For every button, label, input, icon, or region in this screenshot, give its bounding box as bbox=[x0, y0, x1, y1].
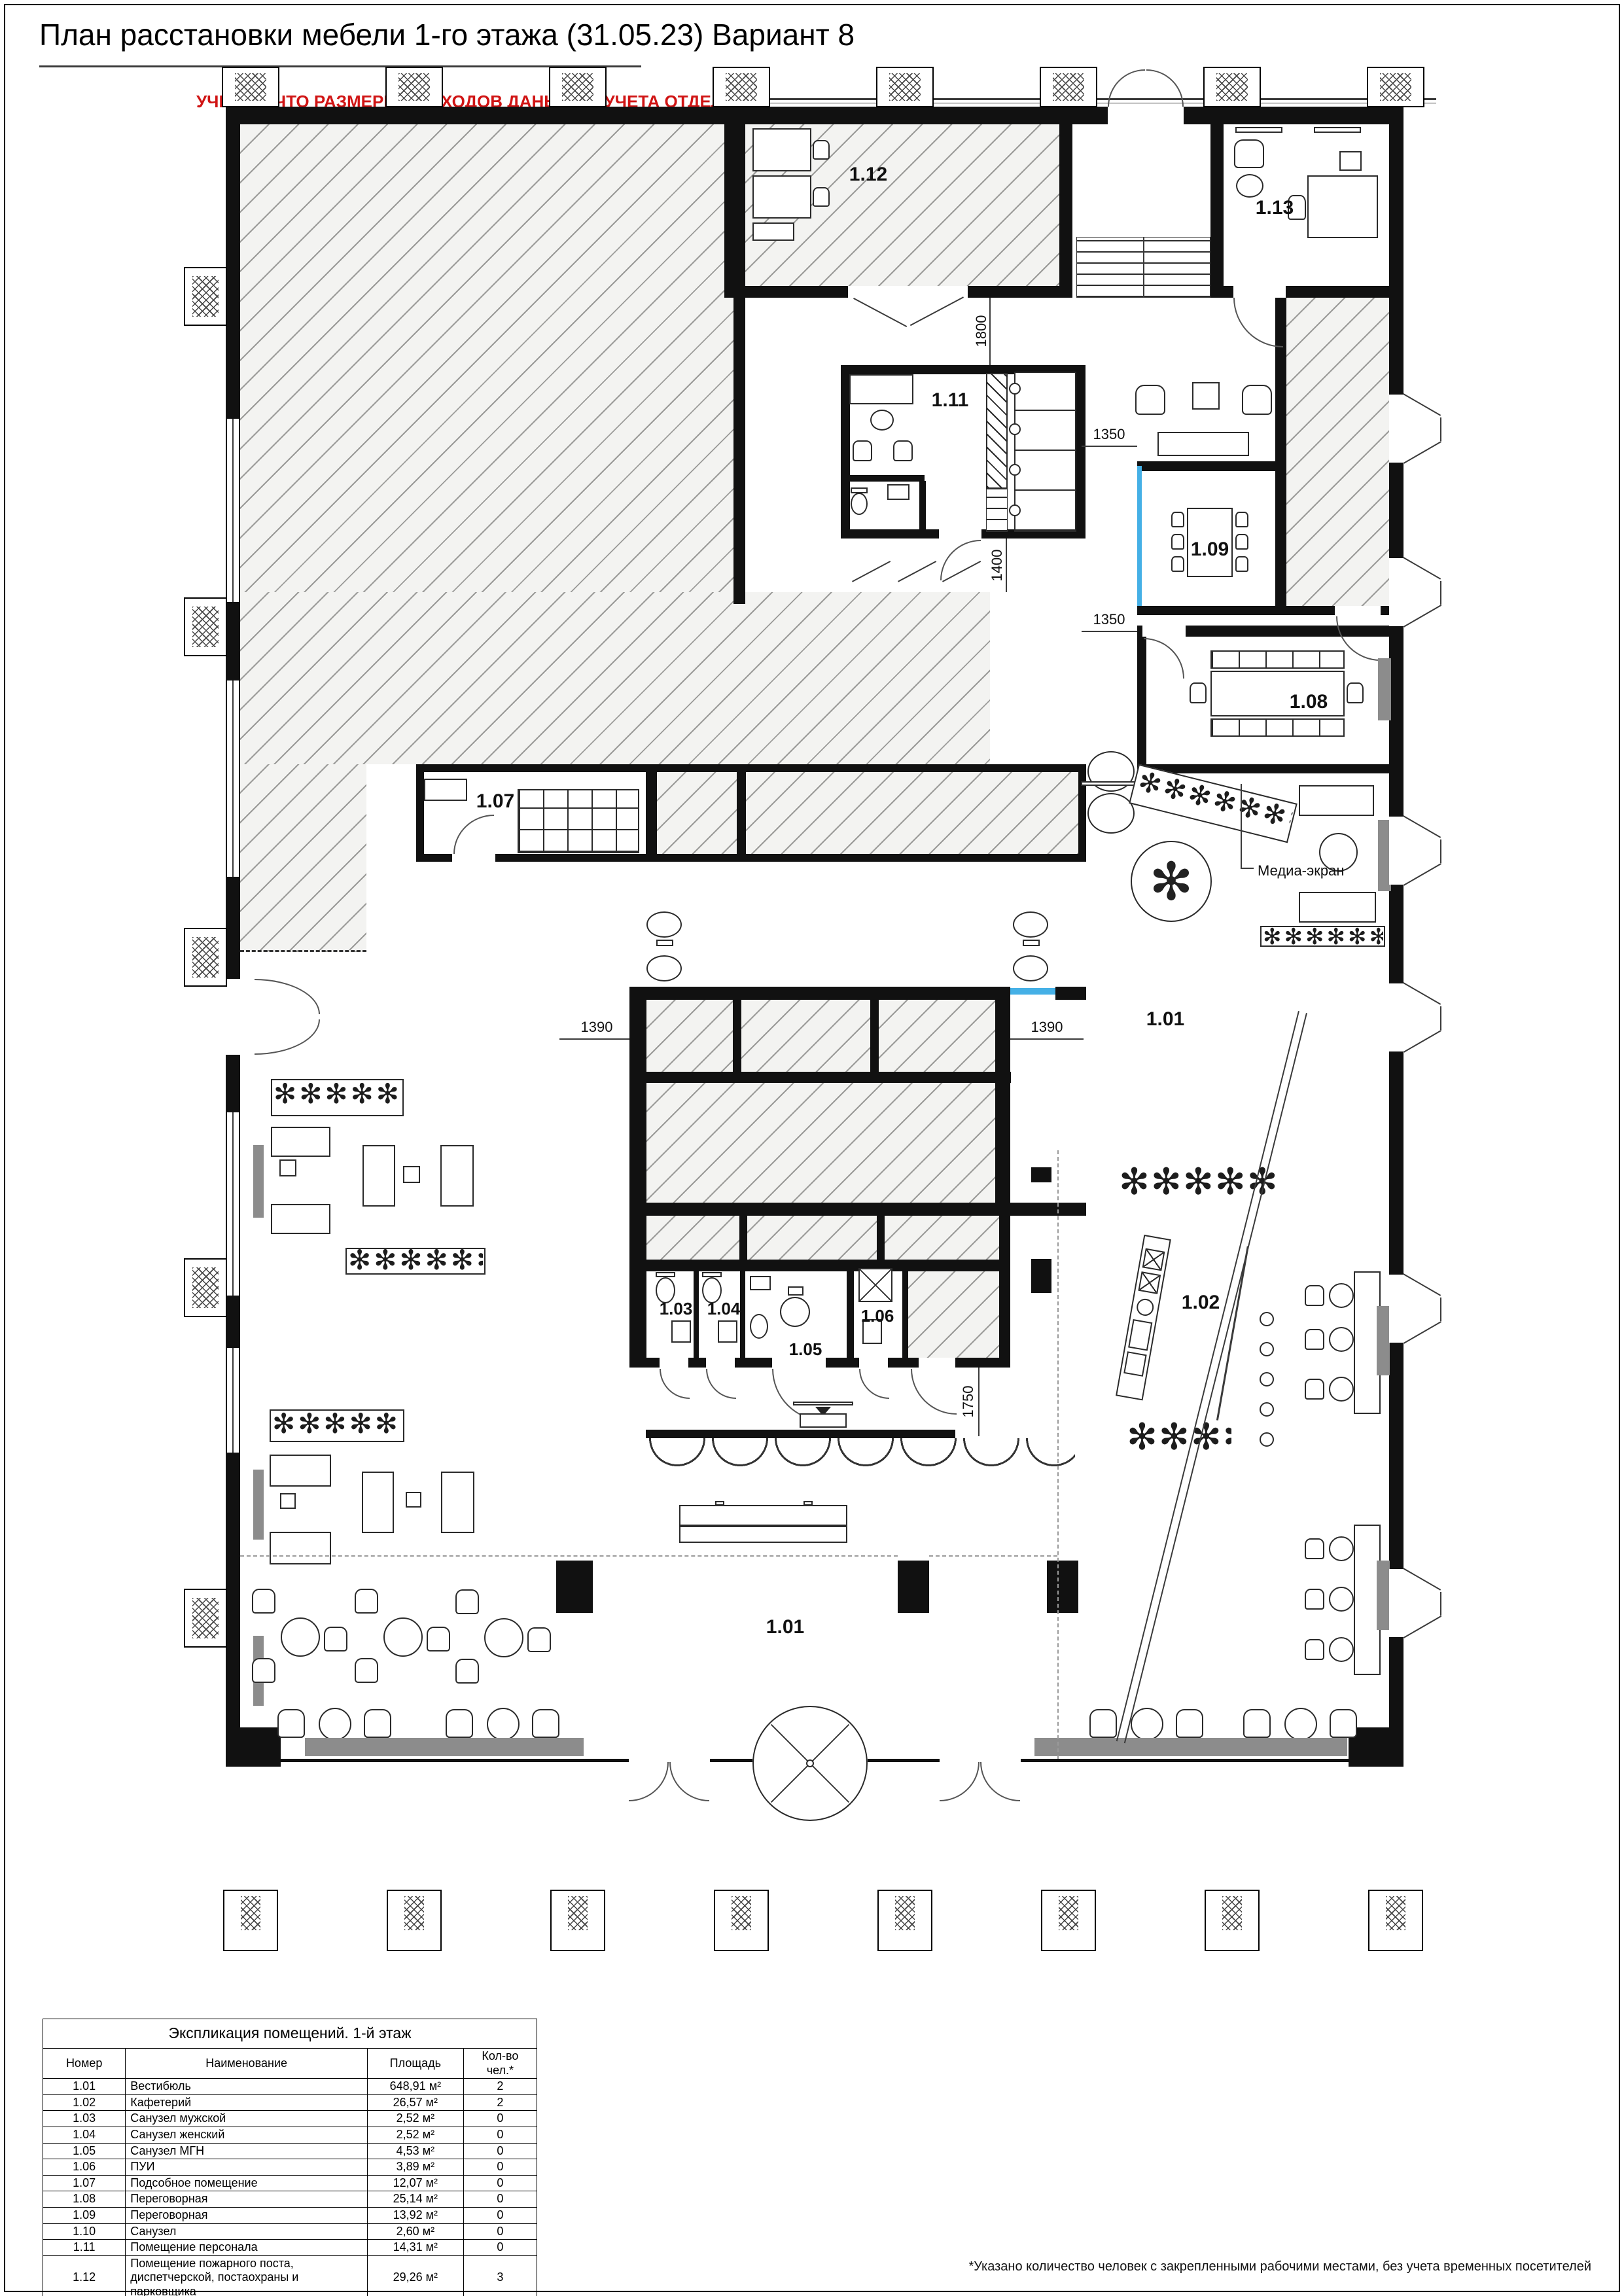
chair bbox=[252, 1658, 275, 1683]
sink bbox=[718, 1320, 737, 1343]
pilaster bbox=[385, 67, 443, 107]
desk bbox=[1307, 175, 1378, 238]
toilet bbox=[851, 493, 868, 515]
grid-chairs bbox=[1210, 650, 1345, 669]
door-arc bbox=[255, 1019, 320, 1055]
room-tag-104: 1.04 bbox=[707, 1300, 741, 1317]
coat-rack bbox=[646, 1430, 955, 1438]
wall bbox=[841, 365, 850, 539]
oval-table bbox=[1013, 955, 1048, 981]
pilaster bbox=[184, 1589, 227, 1648]
info-screen bbox=[793, 1402, 853, 1405]
cell-people: 0 bbox=[463, 2159, 537, 2176]
room-tag-101b: 1.01 bbox=[766, 1617, 804, 1637]
sofa bbox=[362, 1472, 394, 1533]
wall bbox=[1076, 365, 1086, 539]
chair bbox=[355, 1589, 378, 1614]
bay-window bbox=[1440, 1006, 1441, 1030]
table bbox=[1329, 1587, 1354, 1612]
chair bbox=[1347, 682, 1364, 703]
room-tag-106: 1.06 bbox=[861, 1307, 894, 1324]
sink bbox=[671, 1320, 691, 1343]
revolving-door-axis bbox=[806, 1759, 814, 1767]
stairs-divider bbox=[1143, 237, 1144, 298]
cell-num: 1.01 bbox=[43, 2079, 126, 2095]
mat bbox=[1034, 1738, 1347, 1756]
cafe-counter-group bbox=[1114, 1228, 1293, 1428]
table bbox=[281, 1617, 320, 1657]
oval-table bbox=[646, 911, 682, 938]
wall bbox=[1137, 764, 1390, 773]
wall bbox=[999, 1216, 1010, 1368]
wall bbox=[226, 107, 240, 1767]
door-arc bbox=[255, 979, 320, 1014]
cell-people: 2 bbox=[463, 2079, 537, 2095]
armchair bbox=[1089, 1709, 1117, 1738]
pilaster bbox=[223, 1890, 278, 1951]
door-arc bbox=[1108, 69, 1145, 107]
bay-window bbox=[1389, 983, 1403, 1051]
chair bbox=[1009, 423, 1021, 435]
cell-area: 26,57 м² bbox=[368, 2094, 464, 2111]
bay-window bbox=[1403, 982, 1441, 1005]
cell-num: 1.06 bbox=[43, 2159, 126, 2176]
pouf bbox=[403, 1166, 420, 1183]
stool bbox=[656, 940, 673, 946]
door-arc bbox=[629, 1762, 669, 1801]
armchair bbox=[277, 1709, 305, 1738]
table-row: 1.11Помещение персонала14,31 м²0 bbox=[43, 2240, 537, 2256]
stool bbox=[1260, 1372, 1274, 1386]
chair bbox=[1305, 1639, 1324, 1660]
sofa bbox=[362, 1145, 395, 1207]
dimension-line bbox=[559, 1038, 629, 1040]
cell-num: 1.07 bbox=[43, 2175, 126, 2191]
wall bbox=[733, 298, 745, 604]
cell-num: 1.10 bbox=[43, 2223, 126, 2240]
cell-area: 2,52 м² bbox=[368, 2127, 464, 2143]
bay-window bbox=[1403, 1616, 1441, 1638]
cell-people: 0 bbox=[463, 2240, 537, 2256]
dimension-line bbox=[978, 1368, 980, 1436]
door-opening bbox=[226, 979, 240, 1055]
dashed-line bbox=[1057, 1150, 1059, 1759]
table bbox=[487, 1708, 520, 1740]
bay-window bbox=[1440, 581, 1441, 605]
table-row: 1.08Переговорная25,14 м²0 bbox=[43, 2191, 537, 2208]
table bbox=[870, 410, 894, 431]
oval-table bbox=[1013, 911, 1048, 938]
wall bbox=[841, 475, 925, 482]
cell-name: Санузел женский bbox=[126, 2127, 368, 2143]
cooktop bbox=[1138, 1271, 1161, 1294]
window-glazing bbox=[232, 1112, 234, 1296]
sink bbox=[887, 484, 909, 500]
table bbox=[1329, 1283, 1354, 1308]
wall bbox=[955, 1358, 1010, 1368]
pilaster bbox=[184, 597, 227, 656]
table-row: 1.06ПУИ3,89 м²0 bbox=[43, 2159, 537, 2176]
hatch-zone bbox=[879, 1000, 995, 1072]
wall bbox=[1137, 461, 1286, 471]
wall bbox=[226, 107, 1403, 124]
bay-window bbox=[1389, 1275, 1403, 1343]
cooktop bbox=[1142, 1248, 1165, 1271]
pilaster bbox=[714, 1890, 769, 1951]
hatch-zone bbox=[1286, 298, 1389, 606]
door-arc bbox=[1146, 69, 1184, 107]
canopy-line bbox=[761, 103, 1436, 103]
dimension-line bbox=[1082, 446, 1137, 447]
cell-area: 14,31 м² bbox=[368, 2240, 464, 2256]
room-tag-103: 1.03 bbox=[660, 1300, 693, 1317]
table-row: 1.02Кафетерий26,57 м²2 bbox=[43, 2094, 537, 2111]
column-header: Номер bbox=[43, 2049, 126, 2079]
armchair bbox=[1330, 1709, 1357, 1738]
wall bbox=[694, 1271, 699, 1358]
chair bbox=[1235, 556, 1248, 572]
hatch-zone bbox=[746, 772, 1078, 854]
mat bbox=[305, 1738, 584, 1756]
bay-window bbox=[1403, 863, 1441, 886]
wall bbox=[226, 1727, 281, 1767]
locker bbox=[986, 489, 1008, 532]
cell-num: 1.03 bbox=[43, 2111, 126, 2127]
table bbox=[383, 1617, 423, 1657]
stool bbox=[1260, 1432, 1274, 1447]
dimension-line bbox=[1010, 1038, 1084, 1040]
wall bbox=[1381, 606, 1389, 615]
wall bbox=[888, 1358, 919, 1368]
stool bbox=[1260, 1312, 1274, 1326]
table bbox=[1284, 1708, 1317, 1740]
armchair bbox=[364, 1709, 391, 1738]
table bbox=[1192, 382, 1220, 410]
door-opening bbox=[1108, 107, 1184, 124]
dashed-line bbox=[929, 1555, 1057, 1557]
pilaster bbox=[184, 267, 227, 326]
desk bbox=[752, 128, 811, 171]
pilaster bbox=[1205, 1890, 1260, 1951]
dimension-label: 1390 bbox=[579, 1020, 615, 1034]
stool bbox=[1260, 1342, 1274, 1356]
armchair bbox=[1242, 385, 1272, 415]
fridge bbox=[1123, 1351, 1146, 1377]
plant: ✻✻✻✻✻✻✻✻ bbox=[272, 1411, 402, 1441]
door-arc bbox=[911, 1369, 957, 1415]
chair bbox=[1305, 1329, 1324, 1350]
cell-name: Помещение пожарного поста, диспетчерской… bbox=[126, 2255, 368, 2296]
dimension-label: 1350 bbox=[1091, 427, 1127, 442]
cell-num: 1.08 bbox=[43, 2191, 126, 2208]
door-arc bbox=[859, 1369, 889, 1399]
armchair bbox=[1243, 1709, 1271, 1738]
cell-num: 1.11 bbox=[43, 2240, 126, 2256]
table-row: 1.01Вестибюль648,91 м²2 bbox=[43, 2079, 537, 2095]
wall bbox=[733, 1000, 741, 1072]
reception-desk bbox=[679, 1526, 847, 1543]
pilaster bbox=[387, 1890, 442, 1951]
table-row: 1.09Переговорная13,92 м²0 bbox=[43, 2207, 537, 2223]
cell-name: Вестибюль bbox=[126, 2079, 368, 2095]
wall bbox=[629, 1072, 1011, 1083]
grid-chairs bbox=[1210, 718, 1345, 737]
fountain bbox=[1087, 793, 1135, 834]
wheelchair-symbol bbox=[788, 1286, 803, 1296]
table-row: 1.04Санузел женский2,52 м²0 bbox=[43, 2127, 537, 2143]
dimension-label: 1400 bbox=[990, 548, 1004, 584]
bay-window bbox=[1403, 1273, 1441, 1296]
sofa bbox=[271, 1127, 330, 1157]
wall bbox=[1059, 124, 1072, 298]
oval-table bbox=[646, 955, 682, 981]
room-tag-109: 1.09 bbox=[1191, 540, 1229, 559]
chair bbox=[813, 140, 830, 160]
room-tag-101a: 1.01 bbox=[1146, 1010, 1184, 1029]
room-tag-102: 1.02 bbox=[1182, 1293, 1220, 1313]
window-glazing bbox=[232, 680, 234, 877]
chair bbox=[853, 440, 872, 461]
sofa bbox=[1157, 432, 1249, 456]
door-opening bbox=[1233, 286, 1286, 298]
cell-name: ПУИ bbox=[126, 2159, 368, 2176]
table bbox=[1329, 1536, 1354, 1561]
sofa bbox=[440, 1145, 474, 1207]
wall bbox=[739, 1216, 747, 1260]
leader-line bbox=[1241, 784, 1242, 869]
hatch-zone bbox=[908, 1260, 999, 1358]
room-tag-105: 1.05 bbox=[789, 1341, 822, 1358]
glass-wall bbox=[1005, 988, 1055, 995]
table-row: 1.12Помещение пожарного поста, диспетчер… bbox=[43, 2255, 537, 2296]
door-leaf bbox=[898, 561, 936, 582]
cell-name: Подсобное помещение bbox=[126, 2175, 368, 2191]
wall bbox=[495, 854, 1086, 862]
wall bbox=[1078, 764, 1086, 862]
table bbox=[1329, 1637, 1354, 1662]
reception-desk bbox=[679, 1505, 847, 1526]
toilet-tank bbox=[702, 1272, 722, 1277]
chair bbox=[1305, 1285, 1324, 1306]
hatch-zone bbox=[240, 764, 366, 952]
chair bbox=[1235, 534, 1248, 550]
wall bbox=[416, 764, 1086, 772]
toilet bbox=[750, 1314, 768, 1339]
window-glazing bbox=[232, 1348, 234, 1453]
table bbox=[1329, 1377, 1354, 1402]
wall bbox=[740, 1271, 745, 1358]
sofa bbox=[1299, 892, 1376, 923]
bay-window bbox=[1389, 395, 1403, 463]
chair bbox=[1009, 504, 1021, 516]
sheet: План расстановки мебели 1-го этажа (31.0… bbox=[0, 0, 1624, 2296]
pouf bbox=[280, 1493, 296, 1509]
room-tag-112: 1.12 bbox=[849, 165, 887, 185]
wall bbox=[1286, 606, 1335, 615]
dimension-line bbox=[1006, 539, 1007, 592]
plant: ✻✻✻✻✻✻✻✻ bbox=[1127, 1420, 1231, 1508]
wall bbox=[877, 1216, 885, 1260]
stool bbox=[1260, 1402, 1274, 1417]
table bbox=[484, 1618, 523, 1657]
door-leaf bbox=[852, 561, 891, 582]
chair bbox=[455, 1589, 479, 1614]
bay-window bbox=[1403, 557, 1441, 580]
wall bbox=[724, 124, 745, 298]
wall bbox=[1389, 107, 1403, 1767]
radiator bbox=[253, 1470, 264, 1540]
wall bbox=[870, 1000, 879, 1072]
cell-name: Санузел мужской bbox=[126, 2111, 368, 2127]
door-arc bbox=[940, 540, 981, 580]
plant: ✻✻✻✻✻✻✻✻ bbox=[1263, 924, 1383, 947]
door-leaf bbox=[910, 296, 964, 326]
chair bbox=[1009, 383, 1021, 395]
table bbox=[319, 1708, 351, 1740]
cell-area: 2,52 м² bbox=[368, 2111, 464, 2127]
dimension-label: 1750 bbox=[961, 1384, 976, 1420]
plant: ✻✻✻✻✻✻✻✻ bbox=[348, 1247, 483, 1273]
chair bbox=[252, 1589, 275, 1614]
cell-people: 0 bbox=[463, 2207, 537, 2223]
chair bbox=[1305, 1538, 1324, 1559]
cell-name: Санузел bbox=[126, 2223, 368, 2240]
cell-people: 0 bbox=[463, 2111, 537, 2127]
wall bbox=[995, 987, 1010, 1216]
wheelchair-symbol bbox=[780, 1297, 810, 1327]
hatch-zone bbox=[240, 592, 990, 764]
pilaster bbox=[713, 67, 770, 107]
column-header: Кол-во чел.* bbox=[463, 2049, 537, 2079]
media-screen-label: Медиа-экран bbox=[1258, 862, 1344, 879]
armchair bbox=[1135, 385, 1165, 415]
sofa bbox=[270, 1532, 331, 1564]
fountain bbox=[1081, 781, 1141, 786]
table-title: Экспликация помещений. 1-й этаж bbox=[43, 2019, 537, 2049]
bay-window bbox=[1440, 1592, 1441, 1616]
cell-area: 12,07 м² bbox=[368, 2175, 464, 2191]
hatch-zone bbox=[646, 1216, 1010, 1260]
wall bbox=[735, 1358, 772, 1368]
pouf bbox=[279, 1159, 296, 1176]
cell-people: 0 bbox=[463, 2223, 537, 2240]
chair bbox=[324, 1627, 347, 1651]
cell-people: 0 bbox=[463, 2191, 537, 2208]
wall bbox=[1137, 606, 1286, 615]
chair bbox=[1171, 534, 1184, 550]
cell-area: 25,14 м² bbox=[368, 2191, 464, 2208]
column bbox=[1047, 1561, 1078, 1613]
pilaster bbox=[1203, 67, 1261, 107]
pilaster bbox=[550, 1890, 605, 1951]
shelf bbox=[1235, 127, 1282, 133]
table-row: 1.05Санузел МГН4,53 м²0 bbox=[43, 2143, 537, 2159]
desk bbox=[752, 175, 811, 219]
hatch-zone bbox=[657, 772, 737, 854]
cell-people: 0 bbox=[463, 2143, 537, 2159]
pilaster bbox=[184, 1258, 227, 1317]
wall bbox=[919, 481, 926, 539]
chair bbox=[893, 440, 913, 461]
toilet-tank bbox=[656, 1272, 675, 1277]
chair bbox=[1305, 1589, 1324, 1610]
door-arc bbox=[980, 1762, 1020, 1801]
pilaster bbox=[1367, 67, 1424, 107]
pilaster bbox=[876, 67, 934, 107]
wall bbox=[902, 1271, 908, 1358]
leader-line bbox=[1241, 868, 1254, 869]
tree: ✻ bbox=[1131, 841, 1212, 922]
coat-rack-hangers bbox=[646, 1438, 1075, 1470]
bay-window bbox=[1403, 441, 1441, 464]
wall bbox=[1055, 987, 1086, 1000]
wall bbox=[629, 1358, 660, 1368]
floor-plan: ✻✻✻✻✻✻✻✻ ✻✻✻✻✻✻✻✻ ✻✻✻✻✻✻✻✻ ✻✻✻✻✻✻✻✻ ✻✻✻✻… bbox=[0, 0, 1624, 1898]
armchair bbox=[532, 1709, 559, 1738]
sofa bbox=[849, 374, 913, 404]
shelf bbox=[1314, 127, 1361, 133]
room-tag-108: 1.08 bbox=[1290, 692, 1328, 712]
door-arc bbox=[669, 1762, 709, 1801]
cell-num: 1.04 bbox=[43, 2127, 126, 2143]
cell-name: Санузел МГН bbox=[126, 2143, 368, 2159]
shower-drain bbox=[858, 1268, 892, 1302]
cell-name: Переговорная bbox=[126, 2207, 368, 2223]
chair bbox=[1171, 512, 1184, 527]
plant: ✻✻✻✻✻✻✻✻ bbox=[1133, 768, 1294, 841]
wall bbox=[629, 1203, 1086, 1216]
cell-num: 1.05 bbox=[43, 2143, 126, 2159]
pilaster bbox=[1041, 1890, 1096, 1951]
table-row: 1.10Санузел2,60 м²0 bbox=[43, 2223, 537, 2240]
hatch-zone bbox=[741, 1000, 870, 1072]
bay-window bbox=[1440, 839, 1441, 863]
door-arc bbox=[1144, 638, 1184, 679]
column bbox=[898, 1561, 929, 1613]
chair bbox=[1009, 464, 1021, 476]
banquette-back bbox=[1377, 1306, 1390, 1375]
tree-glyph: ✻ bbox=[1149, 851, 1193, 912]
table-row: 1.03Санузел мужской2,52 м²0 bbox=[43, 2111, 537, 2127]
cell-name: Переговорная bbox=[126, 2191, 368, 2208]
plant: ✻✻✻✻✻✻✻✻ bbox=[274, 1081, 402, 1115]
door-arc bbox=[660, 1369, 690, 1399]
stacked-chairs bbox=[518, 789, 639, 853]
banquette-back bbox=[1377, 1561, 1390, 1630]
dimension-label: 1800 bbox=[974, 313, 989, 349]
door-arc bbox=[1233, 298, 1283, 347]
chair bbox=[1235, 512, 1248, 527]
glass-wall bbox=[1137, 466, 1142, 606]
table bbox=[1329, 1327, 1354, 1352]
door-opening bbox=[848, 286, 968, 298]
wall bbox=[1031, 1259, 1051, 1293]
door-leaf bbox=[853, 298, 907, 327]
wall bbox=[1210, 124, 1224, 298]
hatch-zone bbox=[240, 124, 733, 592]
chair bbox=[1171, 556, 1184, 572]
cell-num: 1.02 bbox=[43, 2094, 126, 2111]
desk-lamp bbox=[803, 1501, 813, 1506]
wall bbox=[646, 764, 657, 862]
door-arc bbox=[706, 1369, 736, 1399]
bench bbox=[800, 1413, 847, 1428]
locker bbox=[986, 373, 1008, 489]
bay-window bbox=[1403, 605, 1441, 627]
wall bbox=[688, 1358, 706, 1368]
wall bbox=[847, 1271, 854, 1358]
chair bbox=[1305, 1379, 1324, 1400]
